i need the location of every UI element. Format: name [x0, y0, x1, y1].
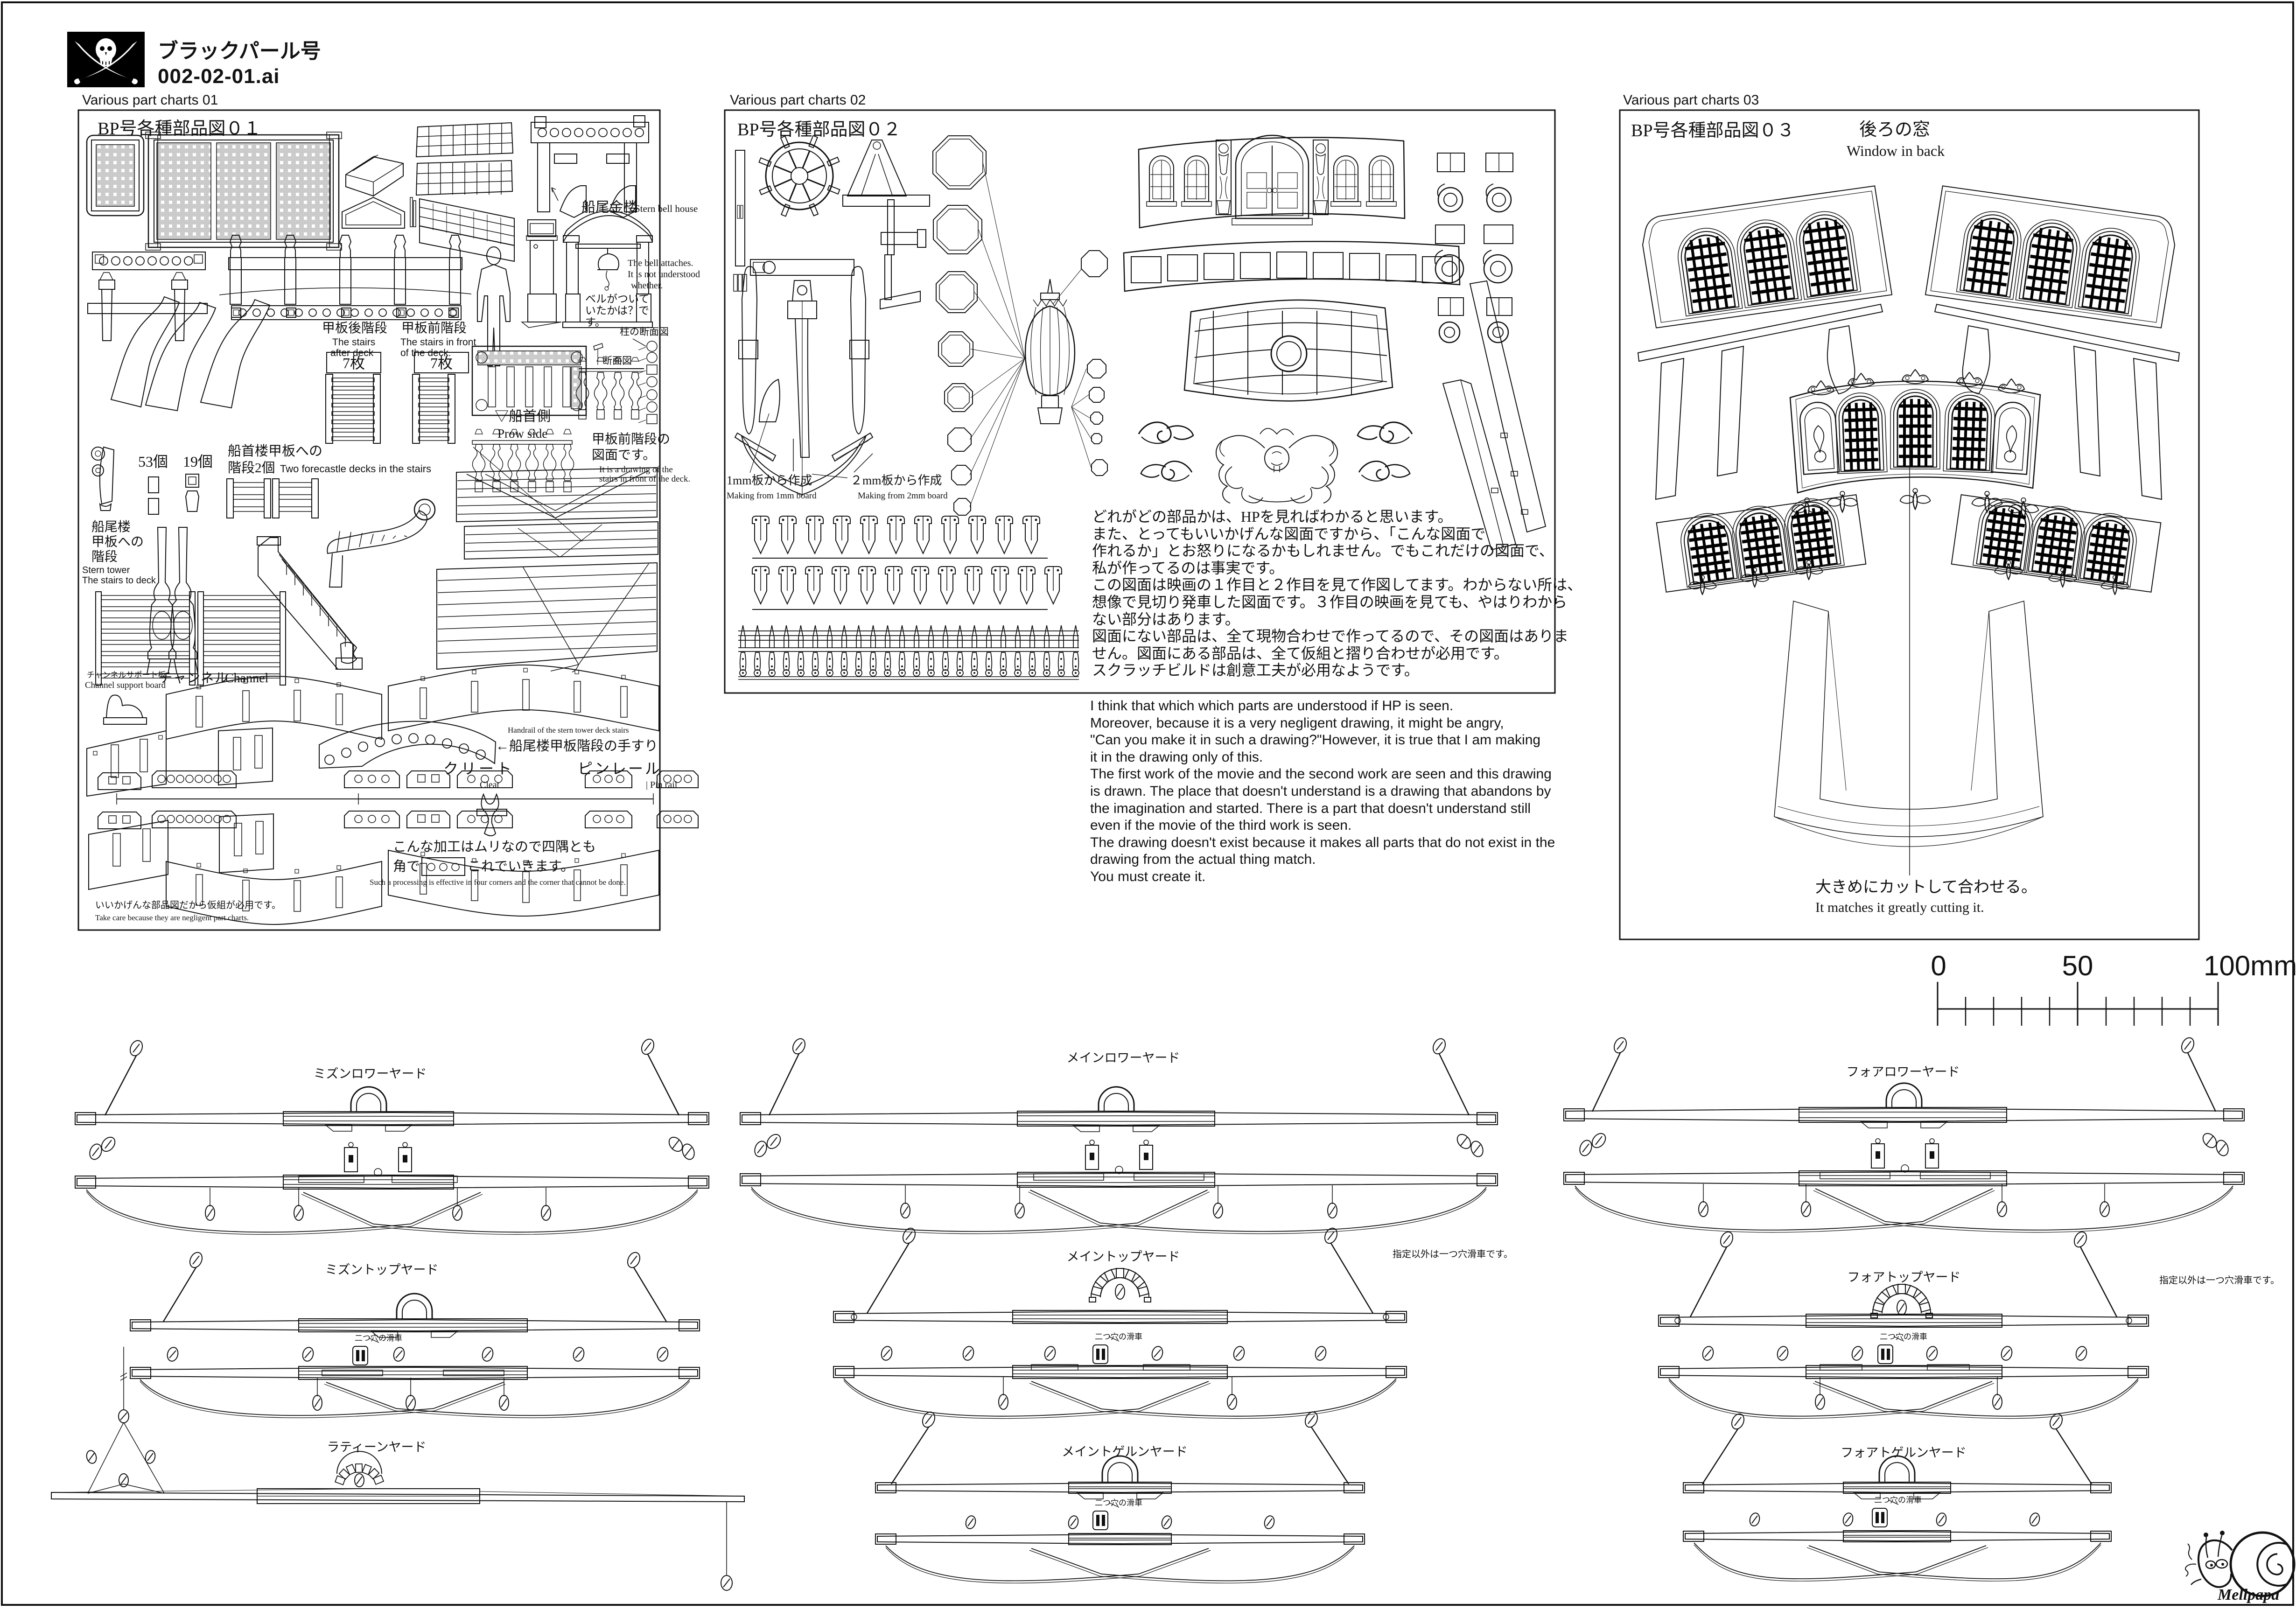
svg-text:Stern tower: Stern tower: [82, 565, 130, 575]
svg-text:Channel support board: Channel support board: [85, 680, 166, 690]
svg-text:BP号各種部品図０３: BP号各種部品図０３: [1631, 121, 1794, 140]
svg-text:甲板前階段: 甲板前階段: [401, 321, 467, 336]
svg-text:100mm: 100mm: [2204, 950, 2296, 981]
svg-text:メインロワーヤード: メインロワーヤード: [1067, 1051, 1180, 1065]
svg-text:また、とってもいいかげんな図面ですから、「こんな図面で: また、とってもいいかげんな図面ですから、「こんな図面で: [1092, 525, 1485, 542]
svg-text:いいかげんな部品図だから仮組が必用です。: いいかげんな部品図だから仮組が必用です。: [95, 900, 281, 910]
svg-text:is drawn. The place that doesn: is drawn. The place that doesn't underst…: [1090, 784, 1551, 799]
svg-text:0: 0: [1931, 950, 1946, 981]
svg-text:クリート: クリート: [443, 760, 514, 777]
svg-text:The bell attaches.: The bell attaches.: [628, 258, 693, 268]
svg-text:スクラッチビルドは創意工夫が必用なようです。: スクラッチビルドは創意工夫が必用なようです。: [1092, 662, 1419, 679]
svg-text:指定以外は一つ穴滑車です。: 指定以外は一つ穴滑車です。: [2159, 1275, 2280, 1286]
svg-text:The first work of the movie an: The first work of the movie and the seco…: [1090, 766, 1552, 782]
svg-text:Making from 1mm board: Making from 1mm board: [727, 491, 817, 501]
svg-text:whether.: whether.: [631, 280, 663, 291]
svg-text:柱の断面図: 柱の断面図: [620, 326, 669, 337]
svg-text:it in the drawing only of this: it in the drawing only of this.: [1090, 749, 1263, 765]
svg-text:The drawing doesn't exist beca: The drawing doesn't exist because it mak…: [1090, 835, 1555, 850]
svg-text:断面図: 断面図: [602, 355, 632, 366]
svg-text:ピンレール: ピンレール: [578, 760, 662, 777]
svg-text:Making from 2mm board: Making from 2mm board: [858, 491, 948, 501]
svg-text:Mellpapa: Mellpapa: [2217, 1586, 2279, 1603]
svg-text:19個: 19個: [183, 453, 213, 470]
svg-text:even if the movie of the third: even if the movie of the third work is s…: [1090, 818, 1351, 833]
svg-text:Handrail of the stern tower de: Handrail of the stern tower deck stairs: [508, 726, 629, 735]
svg-text:The stairs in front: The stairs in front: [400, 337, 476, 348]
svg-text:It matches it greatly cutting: It matches it greatly cutting it.: [1815, 900, 1984, 915]
svg-text:甲板への: 甲板への: [91, 534, 144, 549]
svg-text:Take care because they are neg: Take care because they are negligent par…: [95, 913, 249, 922]
svg-text:7枚: 7枚: [430, 355, 453, 371]
svg-text:The stairs: The stairs: [332, 337, 375, 348]
svg-text:ミズンロワーヤード: ミズンロワーヤード: [314, 1067, 427, 1081]
svg-text:ない部分はあります。: ない部分はあります。: [1092, 611, 1240, 628]
svg-text:ベルがついて: ベルがついて: [585, 293, 649, 305]
svg-text:甲板前階段の: 甲板前階段の: [592, 432, 670, 447]
svg-text:Such a processing is effective: Such a processing is effective in four c…: [370, 878, 626, 887]
svg-text:"Can you make it in such a dra: "Can you make it in such a drawing?"Howe…: [1090, 732, 1540, 748]
svg-text:どれがどの部品かは、HPを見ればわかると思います。: どれがどの部品かは、HPを見ればわかると思います。: [1092, 508, 1452, 525]
svg-text:ラティーンヤード: ラティーンヤード: [327, 1440, 426, 1454]
svg-text:the imagination and started. T: the imagination and started. There is a …: [1090, 801, 1531, 816]
svg-text:Prow side: Prow side: [497, 427, 547, 441]
svg-text:Moreover, because it is a very: Moreover, because it is a very negligent…: [1090, 715, 1504, 731]
svg-text:図面です。: 図面です。: [592, 448, 656, 462]
svg-text:You must create it.: You must create it.: [1090, 869, 1205, 884]
svg-text:メイントップヤード: メイントップヤード: [1067, 1250, 1180, 1264]
svg-text:7枚: 7枚: [343, 355, 365, 371]
svg-text:I think that which which parts: I think that which which parts are under…: [1090, 698, 1453, 714]
svg-text:The stairs to deck: The stairs to deck: [82, 575, 156, 586]
svg-text:大きめにカットして合わせる。: 大きめにカットして合わせる。: [1815, 878, 2037, 896]
svg-text:フォアトップヤード: フォアトップヤード: [1848, 1270, 1961, 1284]
svg-text:せん。図面にある部品は、全て仮組と摺り合わせが必用です。: せん。図面にある部品は、全て仮組と摺り合わせが必用です。: [1092, 645, 1509, 662]
svg-text:Window in back: Window in back: [1847, 142, 1945, 159]
svg-text:私が作ってるのは事実です。: 私が作ってるのは事実です。: [1092, 560, 1284, 576]
svg-text:It is not understood: It is not understood: [628, 269, 700, 280]
svg-text:後ろの窓: 後ろの窓: [1859, 120, 1930, 140]
svg-text:| Pin rail: | Pin rail: [646, 780, 678, 790]
svg-text:drawing from the actual thing: drawing from the actual thing match.: [1090, 852, 1316, 867]
svg-text:想像で見切り発車した図面です。３作目の映画を見ても、やはりわ: 想像で見切り発車した図面です。３作目の映画を見ても、やはりわから: [1092, 594, 1567, 610]
svg-text:▽船首側: ▽船首側: [495, 409, 551, 424]
svg-text:船首楼甲板への: 船首楼甲板への: [228, 443, 322, 459]
svg-text:Various part charts 03: Various part charts 03: [1623, 92, 1759, 108]
svg-text:フォアロワーヤード: フォアロワーヤード: [1847, 1065, 1960, 1079]
svg-text:二つ穴の滑車: 二つ穴の滑車: [355, 1334, 402, 1343]
svg-text:甲板後階段: 甲板後階段: [322, 321, 387, 336]
svg-text:これでいきます。: これでいきます。: [468, 859, 574, 874]
svg-text:階段2個: 階段2個: [228, 460, 275, 476]
svg-text:二つ穴の滑車: 二つ穴の滑車: [1095, 1498, 1142, 1507]
svg-text:角で: 角で: [393, 859, 420, 874]
svg-text:It is a drawing of the: It is a drawing of the: [599, 465, 673, 475]
svg-text:Cleat: Cleat: [480, 780, 500, 790]
svg-text:Two forecastle decks in the st: Two forecastle decks in the stairs: [280, 463, 431, 475]
svg-text:1mm板から作成: 1mm板から作成: [727, 474, 812, 487]
svg-text:ブラックパール号: ブラックパール号: [158, 39, 321, 63]
svg-text:二つ穴の滑車: 二つ穴の滑車: [1095, 1332, 1142, 1341]
svg-text:作れるか」とお怒りになるかもしれません。でもこれだけの図面で: 作れるか」とお怒りになるかもしれません。でもこれだけの図面で、: [1092, 542, 1554, 559]
svg-text:この図面は映画の１作目と２作目を見て作図してます。わからない: この図面は映画の１作目と２作目を見て作図してます。わからない所は、: [1092, 576, 1582, 593]
svg-text:Various part charts 01: Various part charts 01: [82, 92, 218, 108]
svg-text:002-02-01.ai: 002-02-01.ai: [158, 65, 280, 88]
svg-text:船尾楼: 船尾楼: [91, 519, 131, 534]
svg-text:船尾金楼: 船尾金楼: [581, 200, 637, 215]
svg-text:Various part charts 02: Various part charts 02: [730, 92, 866, 108]
svg-text:50: 50: [2062, 950, 2093, 981]
svg-text:BP号各種部品図０２: BP号各種部品図０２: [737, 120, 901, 140]
svg-text:階段: 階段: [91, 549, 118, 564]
svg-text:ミズントップヤード: ミズントップヤード: [325, 1263, 439, 1277]
svg-text:53個: 53個: [138, 453, 168, 470]
svg-text:チャンネルサポート板: チャンネルサポート板: [87, 671, 166, 679]
svg-text:←船尾楼甲板階段の手すり: ←船尾楼甲板階段の手すり: [496, 738, 658, 754]
svg-text:図面にない部品は、全て現物合わせで作ってるので、その図面はあ: 図面にない部品は、全て現物合わせで作ってるので、その図面はありま: [1092, 628, 1568, 644]
svg-text:いたかは？で: いたかは？で: [585, 305, 649, 316]
svg-text:指定以外は一つ穴滑車です。: 指定以外は一つ穴滑車です。: [1393, 1249, 1513, 1260]
svg-text:す。: す。: [585, 316, 606, 328]
svg-text:２mm板から作成: ２mm板から作成: [850, 474, 942, 487]
svg-text:stairs in front of the deck.: stairs in front of the deck.: [599, 474, 690, 484]
svg-text:二つ穴の滑車: 二つ穴の滑車: [1874, 1496, 1922, 1505]
svg-text:二つ穴の滑車: 二つ穴の滑車: [1880, 1332, 1927, 1341]
svg-text:Stern bell house: Stern bell house: [635, 203, 698, 214]
